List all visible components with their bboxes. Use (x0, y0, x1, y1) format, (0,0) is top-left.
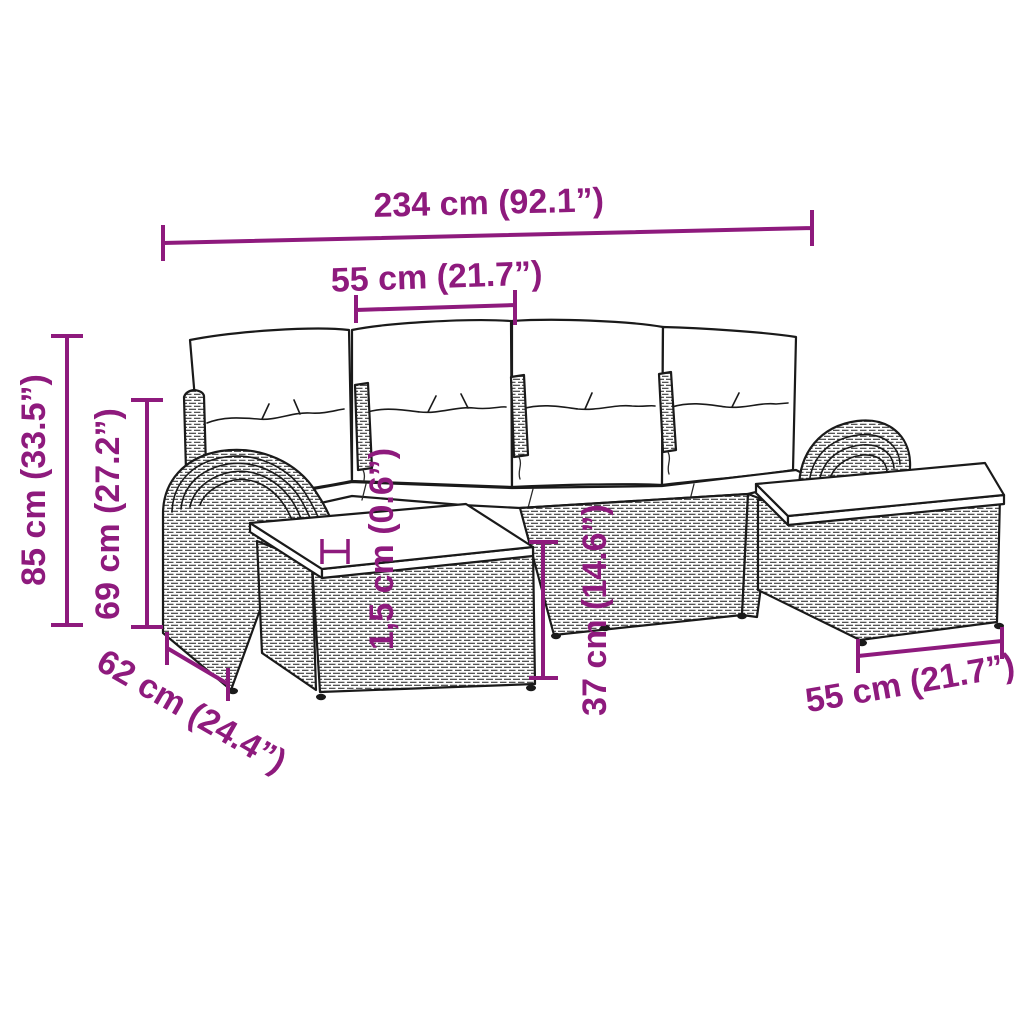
product-dimension-diagram: 234 cm (92.1”) 55 cm (21.7”) 85 cm (33.5… (0, 0, 1024, 1024)
backrest-height-line (131, 400, 163, 627)
foot (316, 694, 326, 700)
dimension-backrest-height: 69 cm (27.2”) (89, 400, 163, 627)
dimension-overall-height: 85 cm (33.5”) (15, 336, 83, 625)
stool-width-label: 55 cm (21.7”) (803, 646, 1018, 720)
overall-width-label: 234 cm (92.1”) (373, 181, 604, 225)
back-pillow-4 (662, 327, 796, 485)
overall-height-label: 85 cm (33.5”) (15, 374, 53, 586)
dimension-overall-width: 234 cm (92.1”) (163, 181, 812, 261)
backrest-height-label: 69 cm (27.2”) (89, 408, 127, 620)
seat-module-width-label: 55 cm (21.7”) (330, 254, 543, 299)
dimension-stool-width: 55 cm (21.7”) (803, 627, 1018, 720)
sofa-base-front (520, 494, 748, 635)
seat-height-label: 37 cm (14.6”) (576, 504, 614, 716)
foot (551, 633, 561, 639)
cushion-thickness-label: 1,5 cm (0.6”) (363, 448, 401, 650)
foot (526, 685, 536, 691)
foot (737, 613, 747, 619)
pillow-tie-strap-2 (511, 375, 528, 457)
overall-height-line (51, 336, 83, 625)
dimension-seat-module-width: 55 cm (21.7”) (330, 254, 543, 325)
garden-sofa-dimension-drawing: 234 cm (92.1”) 55 cm (21.7”) 85 cm (33.5… (0, 0, 1024, 1024)
